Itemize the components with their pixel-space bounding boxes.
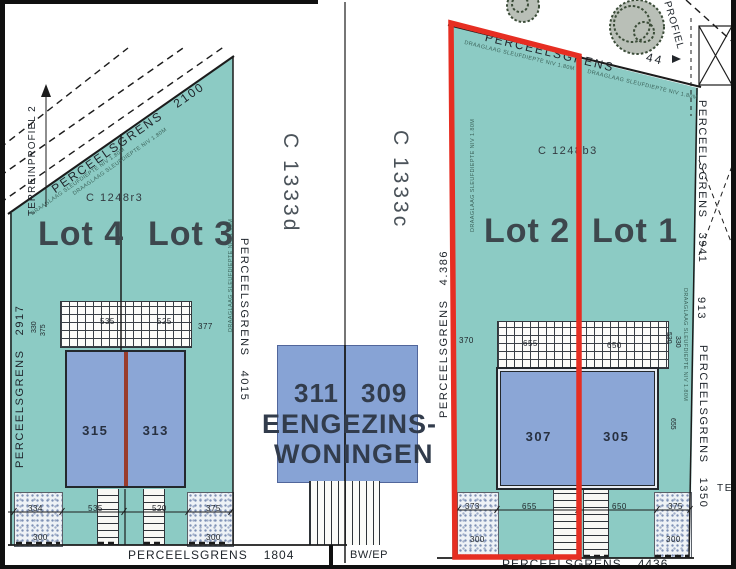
scan-border-bottom	[0, 565, 736, 569]
site-plan: 315 313 307 305	[0, 0, 736, 569]
scan-border-right	[731, 0, 736, 569]
scan-border-left	[0, 0, 5, 569]
red-highlight-lot2	[451, 23, 579, 557]
overlay	[0, 0, 736, 569]
scan-border-top	[0, 0, 318, 4]
red-edge-marks	[16, 543, 689, 556]
